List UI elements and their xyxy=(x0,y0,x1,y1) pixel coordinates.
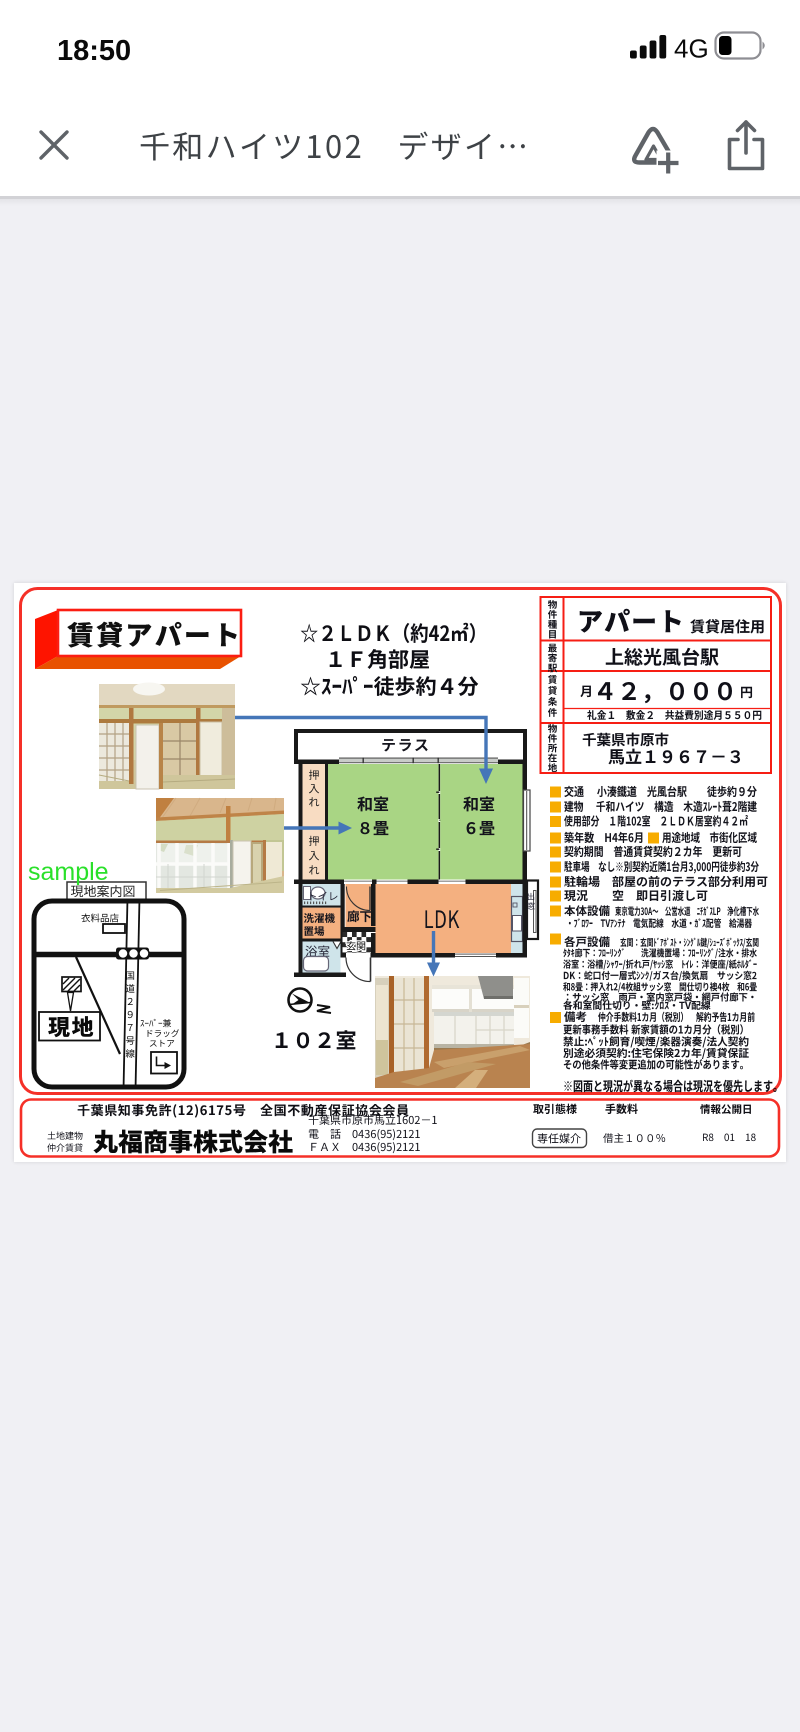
svg-text:sample: sample xyxy=(28,858,109,886)
svg-text:4G: 4G xyxy=(674,34,709,64)
svg-text:18:50: 18:50 xyxy=(57,35,131,67)
